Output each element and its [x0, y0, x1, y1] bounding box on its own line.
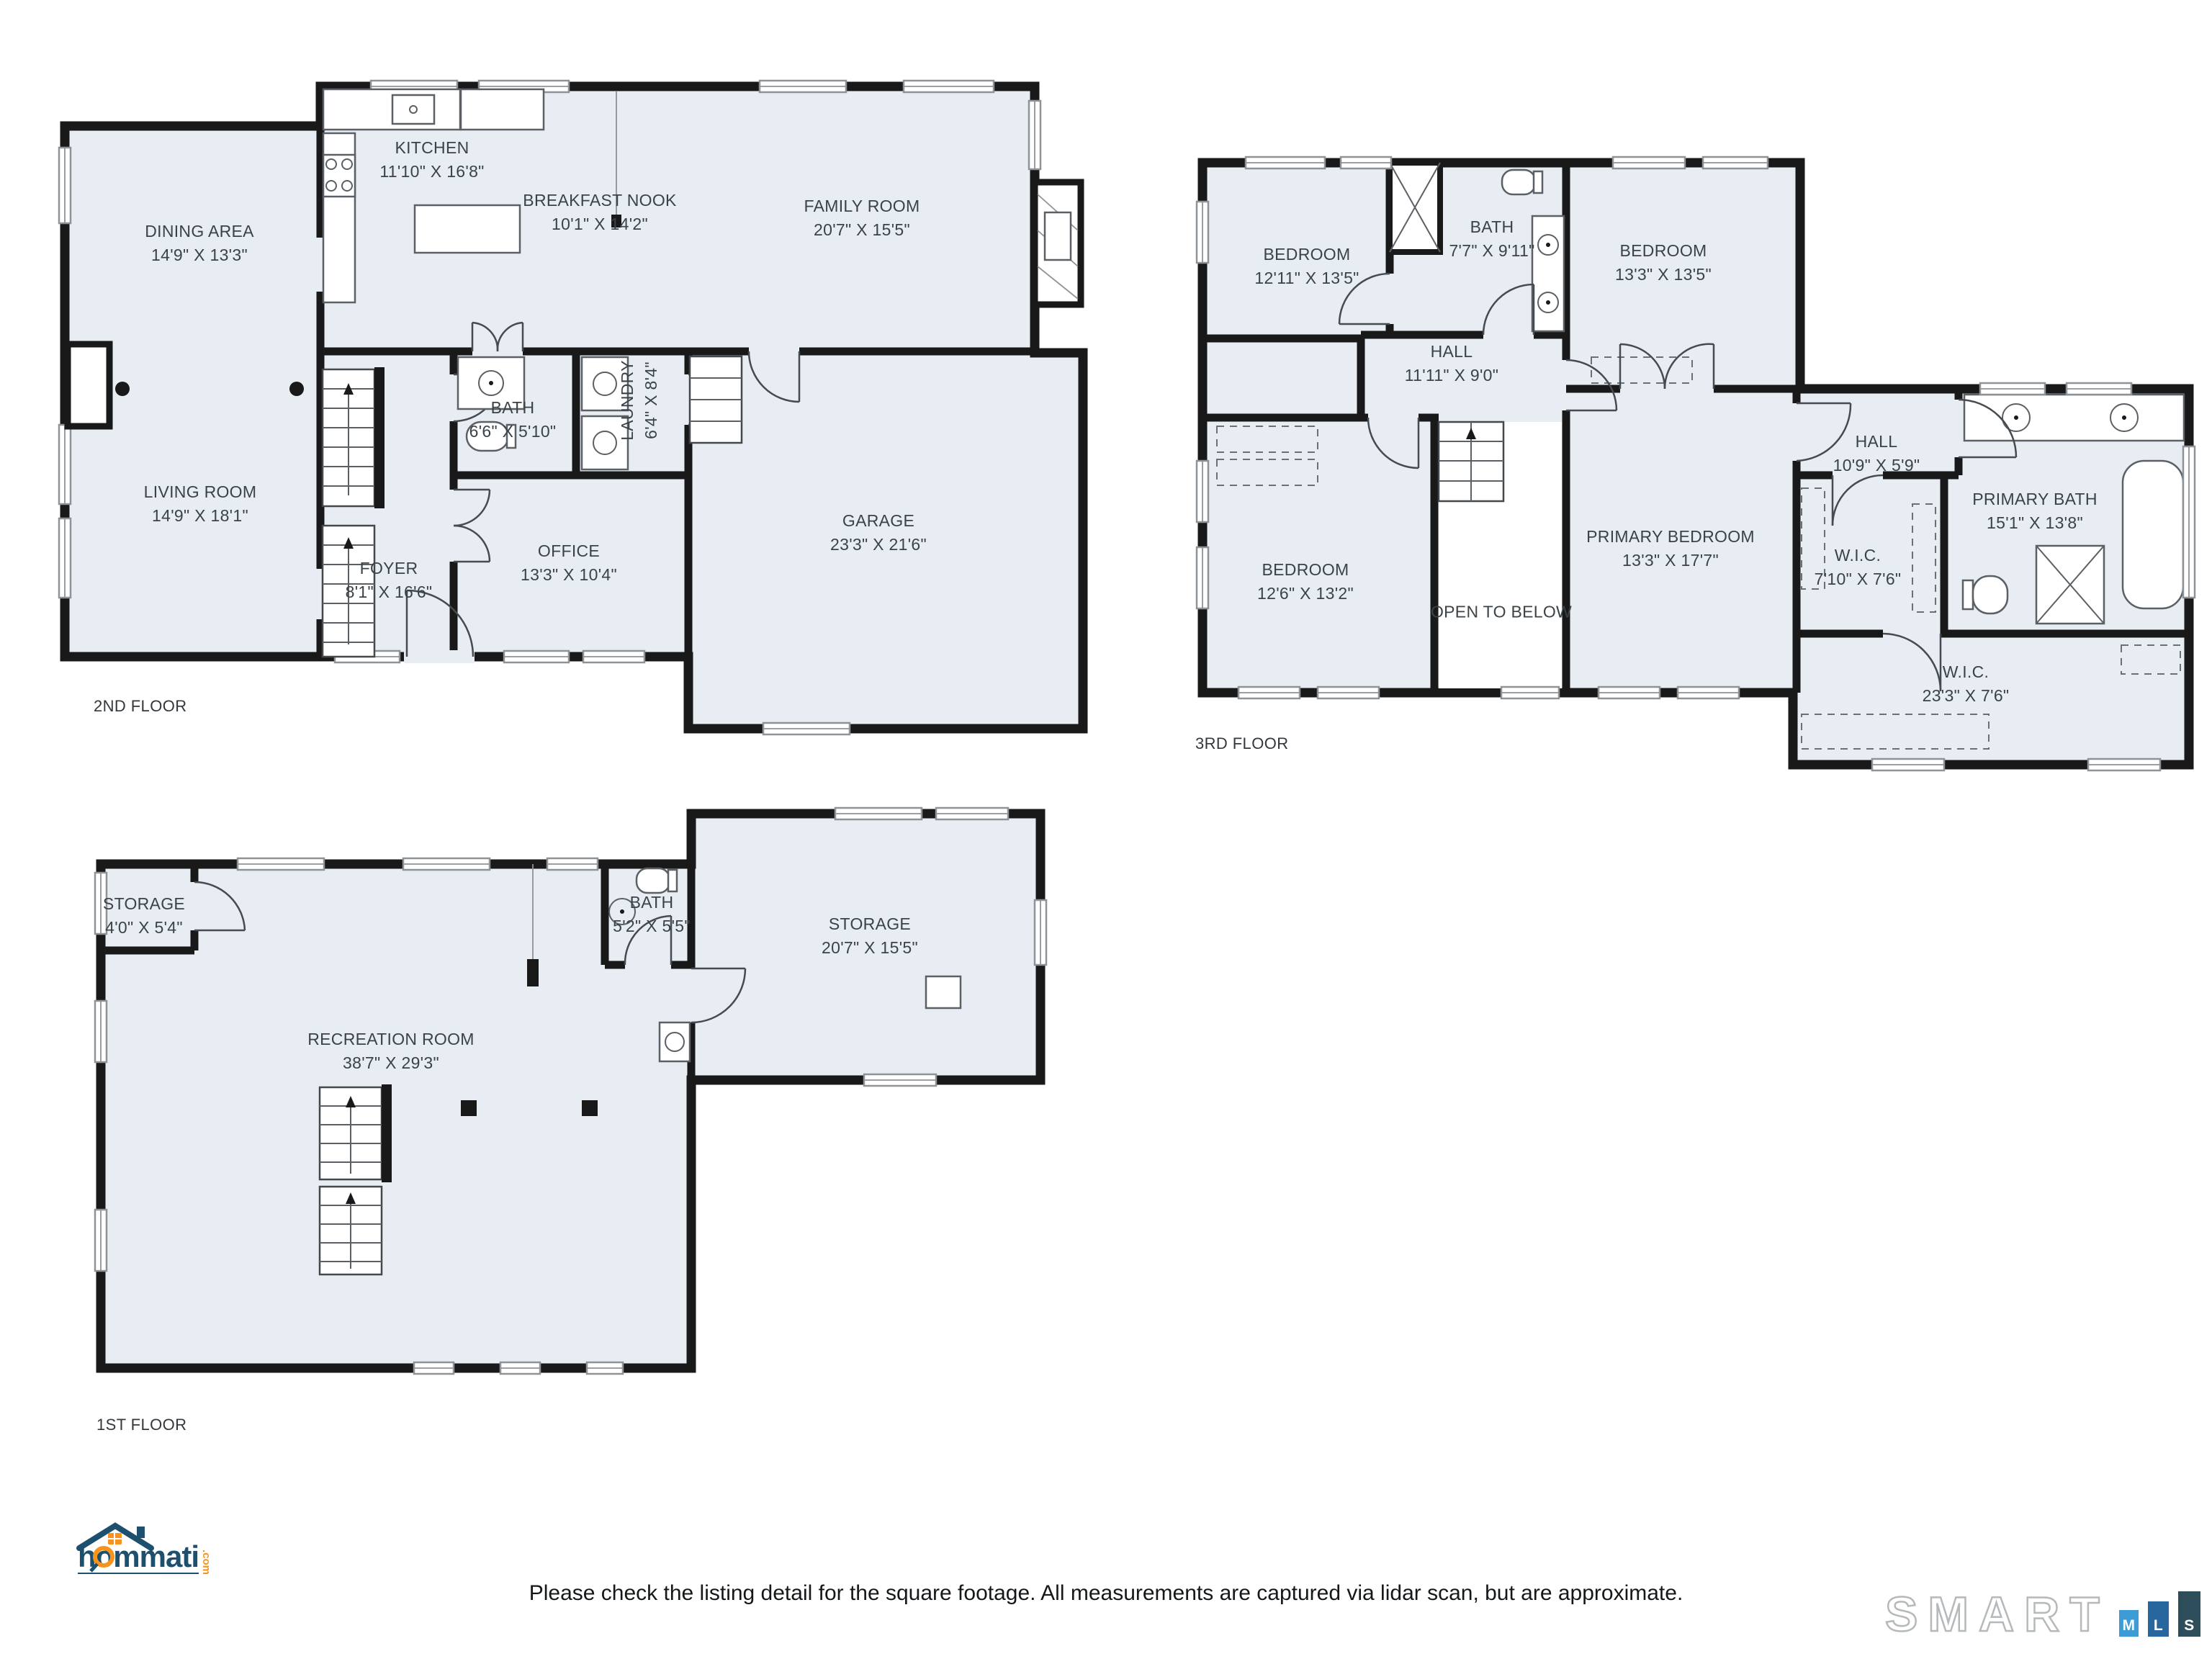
- room-label-3f-bedroom-3: BEDROOM12'6" X 13'2": [1257, 558, 1354, 606]
- utility-water-heater: [660, 1022, 690, 1061]
- measurement-disclaimer: Please check the listing detail for the …: [0, 1581, 2212, 1606]
- smart-wordmark: SMART: [1885, 1592, 2110, 1637]
- floor-label-3rd: 3RD FLOOR: [1195, 734, 1289, 753]
- room-label-2f-bath: BATH6'6" X 5'10": [469, 396, 557, 444]
- living-room-fireplace: [68, 344, 109, 426]
- room-label-2f-office: OFFICE13'3" X 10'4": [521, 539, 617, 587]
- room-label-3f-open-to-below: OPEN TO BELOW: [1431, 601, 1572, 624]
- mls-s-square: S: [2178, 1591, 2200, 1637]
- room-label-3f-wic-2: W.I.C.23'3" X 7'6": [1923, 660, 2010, 708]
- bathtub: [2123, 461, 2183, 608]
- room-label-2f-foyer: FOYER8'1" X 16'6": [346, 557, 433, 604]
- hommati-logo: hommati .com: [76, 1521, 210, 1581]
- column: [582, 1100, 598, 1116]
- hommati-logo-svg: hommati .com: [76, 1521, 210, 1577]
- floor-label-2nd: 2ND FLOOR: [94, 697, 187, 716]
- room-label-3f-primary-bedroom: PRIMARY BEDROOM13'3" X 17'7": [1586, 525, 1755, 572]
- column: [115, 382, 130, 396]
- room-label-3f-hall: HALL11'11" X 9'0": [1405, 340, 1498, 387]
- room-label-1f-recreation-room: RECREATION ROOM38'7" X 29'3": [307, 1028, 475, 1075]
- front-door-gap: [404, 650, 475, 663]
- mls-m-square: M: [2119, 1610, 2139, 1637]
- room-label-2f-breakfast-nook: BREAKFAST NOOK10'1" X 14'2": [523, 189, 676, 236]
- room-label-1f-bath: BATH5'2" X 5'5": [613, 891, 691, 938]
- room-label-1f-storage-1: STORAGE4'0" X 5'4": [103, 892, 185, 940]
- kitchen-island: [415, 205, 520, 253]
- floorplan-drawing: [0, 0, 2212, 1659]
- column: [461, 1100, 477, 1116]
- room-label-2f-kitchen: KITCHEN11'10" X 16'8": [379, 136, 484, 184]
- smart-mls-logo: SMART M L S: [1885, 1591, 2200, 1637]
- second-floor-plan: [59, 81, 1083, 734]
- room-label-3f-bedroom-1: BEDROOM12'11" X 13'5": [1254, 243, 1359, 290]
- room-label-2f-dining-area: DINING AREA14'9" X 13'3": [145, 220, 254, 267]
- room-label-3f-bath: BATH7'7" X 9'11": [1449, 215, 1534, 263]
- hommati-com: .com: [200, 1550, 210, 1575]
- floor-label-1st: 1ST FLOOR: [96, 1416, 186, 1434]
- storage-box: [926, 976, 961, 1008]
- room-label-2f-garage: GARAGE23'3" X 21'6": [830, 509, 927, 557]
- room-label-3f-hall-2: HALL10'9" X 5'9": [1833, 430, 1920, 477]
- third-floor-stairs: [1439, 422, 1503, 501]
- mls-l-square: L: [2148, 1601, 2169, 1637]
- chimney-icon: [137, 1527, 145, 1538]
- basement-stairs: [320, 1084, 392, 1274]
- room-label-3f-bedroom-2: BEDROOM13'3" X 13'5": [1615, 239, 1712, 287]
- room-label-2f-family-room: FAMILY ROOM20'7" X 15'5": [804, 194, 920, 242]
- room-label-2f-laundry: LAUNDRY6'4" X 8'4": [616, 360, 663, 441]
- room-label-1f-storage-2: STORAGE20'7" X 15'5": [822, 912, 918, 960]
- first-floor-plan: [95, 808, 1046, 1374]
- column: [289, 382, 304, 396]
- family-room-fireplace: [1035, 182, 1081, 305]
- room-label-3f-primary-bath: PRIMARY BATH15'1" X 13'8": [1972, 487, 2098, 535]
- garage-steps: [690, 356, 742, 443]
- floorplan-page: DINING AREA14'9" X 13'3" KITCHEN11'10" X…: [0, 0, 2212, 1659]
- room-label-3f-wic-1: W.I.C.7'10" X 7'6": [1815, 544, 1902, 591]
- laundry-chute-closet: [1390, 163, 1440, 252]
- room-label-2f-living-room: LIVING ROOM14'9" X 18'1": [144, 480, 257, 528]
